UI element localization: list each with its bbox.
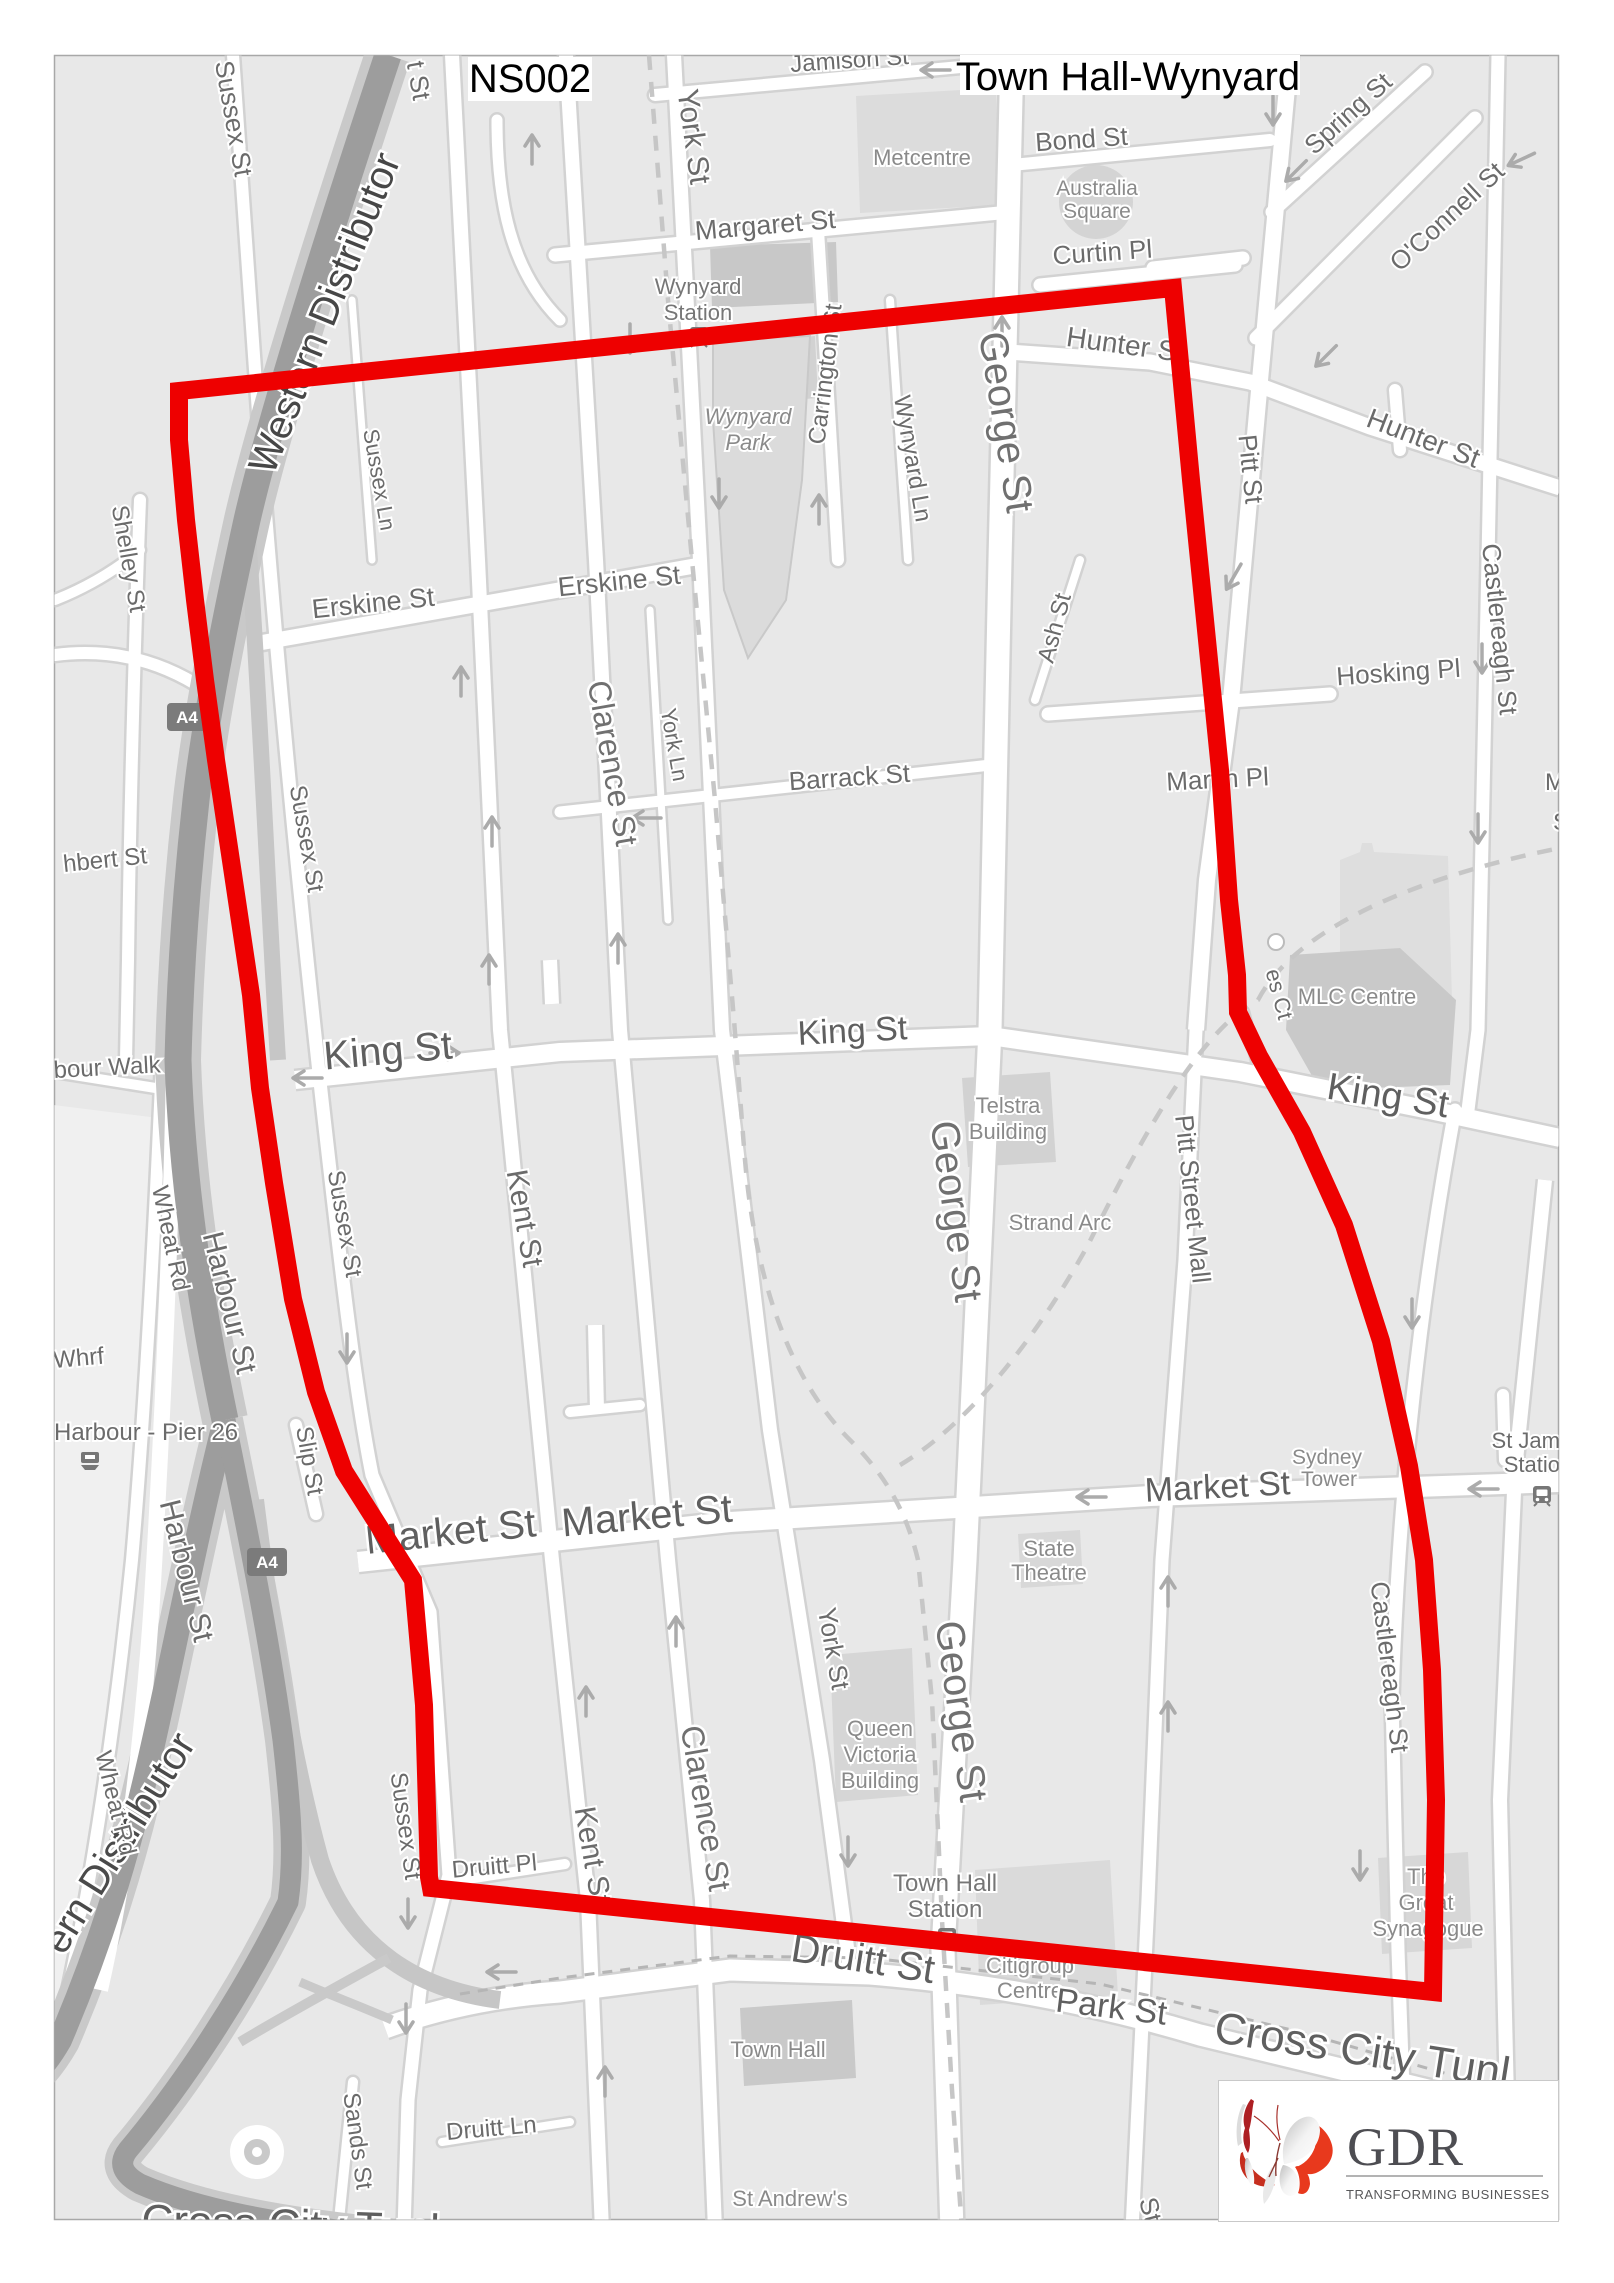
svg-text:Building: Building [841, 1768, 919, 1793]
svg-text:St Andrew's: St Andrew's [732, 2186, 847, 2211]
svg-text:Statio: Statio [1504, 1452, 1560, 1477]
svg-text:Strand Arc: Strand Arc [1009, 1210, 1112, 1235]
svg-text:bour Walk: bour Walk [53, 1051, 162, 1084]
svg-text:GDR: GDR [1347, 2117, 1464, 2177]
svg-text:Town Hall: Town Hall [893, 1870, 997, 1897]
svg-text:Australia: Australia [1056, 177, 1138, 200]
svg-text:TRANSFORMING BUSINESSES: TRANSFORMING BUSINESSES [1346, 2187, 1550, 2202]
svg-text:Victoria: Victoria [844, 1742, 918, 1767]
svg-text:St Jam: St Jam [1492, 1428, 1560, 1453]
svg-text:Market St: Market St [1144, 1464, 1292, 1510]
svg-text:Wynyard: Wynyard [705, 404, 793, 429]
svg-text:Station: Station [664, 300, 733, 325]
svg-text:Town Hall-Wynyard: Town Hall-Wynyard [956, 55, 1300, 99]
svg-text:Queen: Queen [847, 1716, 913, 1741]
svg-text:MLC Centre: MLC Centre [1298, 984, 1417, 1009]
svg-text:Whrf: Whrf [52, 1343, 105, 1374]
svg-text:King St: King St [797, 1009, 909, 1053]
svg-text:Metcentre: Metcentre [873, 145, 971, 170]
svg-text:A4: A4 [256, 1553, 278, 1572]
svg-text:State: State [1023, 1536, 1074, 1561]
svg-text:Building: Building [969, 1119, 1047, 1144]
svg-text:Tower: Tower [1301, 1468, 1357, 1491]
svg-text:Centre: Centre [997, 1978, 1063, 2003]
svg-text:Harbour - Pier 26: Harbour - Pier 26 [54, 1419, 238, 1446]
svg-text:Town Hall: Town Hall [730, 2037, 825, 2062]
svg-text:Wynyard: Wynyard [655, 274, 742, 299]
svg-text:NS002: NS002 [469, 57, 591, 101]
svg-text:Square: Square [1063, 200, 1131, 223]
svg-text:Station: Station [908, 1896, 983, 1923]
svg-text:Sydney: Sydney [1292, 1446, 1363, 1469]
svg-text:A4: A4 [176, 708, 198, 727]
svg-text:Telstra: Telstra [976, 1093, 1042, 1118]
svg-text:Theatre: Theatre [1011, 1560, 1087, 1585]
svg-text:Park: Park [725, 430, 771, 455]
